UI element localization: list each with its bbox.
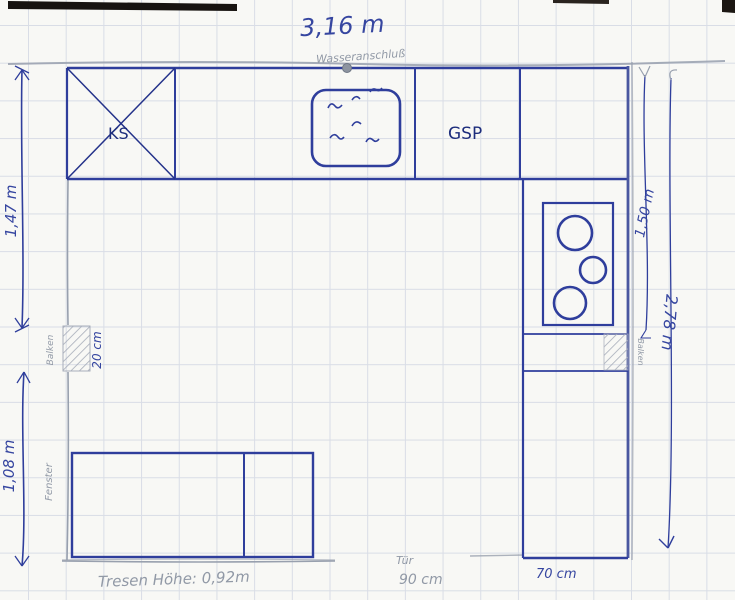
- dishwasher-label: GSP: [448, 124, 482, 144]
- arrowhead-down: [659, 536, 674, 548]
- arrowhead-curl-top: [670, 70, 677, 80]
- scan-strip-top-center: [553, 0, 609, 4]
- door-label: Tür: [396, 554, 415, 567]
- dim-right-inner-label: 1,50 m: [632, 187, 658, 239]
- fridge-label: KS: [108, 124, 129, 143]
- bottom-counter: [62, 453, 335, 560]
- burner-circle-3: [554, 287, 586, 319]
- stove: [543, 203, 613, 325]
- sink-outline: [312, 90, 400, 166]
- beam-right-hatch: [604, 334, 628, 370]
- sink-squiggle: [352, 122, 361, 126]
- bottom-counter-outline: [72, 453, 313, 557]
- burner-circle-1: [558, 216, 592, 250]
- bottom-wall-left-line: [62, 561, 335, 562]
- kitchen-floor-plan-scan: 3,16 m Wasseranschluß KS GSP 1,47 m 1,08…: [0, 0, 735, 600]
- counter-height-note: Tresen Höhe: 0,92m: [98, 568, 250, 591]
- scan-strip-top-left: [8, 1, 237, 11]
- top-counter-run: [67, 64, 628, 180]
- beam-right-label: Balken: [636, 338, 645, 365]
- beam-depth-label: 20 cm: [90, 331, 104, 368]
- beam-left-hatch: [63, 326, 90, 371]
- sink-squiggle: [352, 97, 360, 100]
- right-counter-column: [523, 66, 628, 558]
- floor-plan-drawing: 3,16 m Wasseranschluß KS GSP 1,47 m 1,08…: [0, 0, 735, 600]
- sink: [312, 88, 400, 166]
- left-wall-upper-line: [68, 180, 69, 325]
- left-beam: [63, 326, 90, 371]
- sink-squiggle: [370, 88, 382, 92]
- right-wall-pencil-line: [632, 62, 633, 560]
- dim-left-lower-label: 1,08 m: [0, 440, 18, 493]
- dim-line: [22, 372, 24, 566]
- burner-circle-2: [580, 257, 606, 283]
- tick-mark: [641, 330, 651, 338]
- dim-top-width-label: 3,16 m: [299, 10, 385, 42]
- scan-strip-top-right: [722, 0, 735, 13]
- sink-squiggle: [366, 138, 379, 142]
- sink-squiggle: [330, 135, 344, 139]
- bottom-counter-underline: [62, 559, 335, 560]
- beam-left-label: Balken: [46, 334, 56, 365]
- dim-line: [22, 70, 23, 328]
- dim-right-outer-label: 2,78 m: [658, 294, 682, 352]
- dim-left-upper-label: 1,47 m: [2, 185, 20, 238]
- arrowhead-up: [639, 66, 650, 77]
- left-wall-lower-line: [67, 372, 68, 560]
- window-label: Fenster: [44, 462, 55, 501]
- annotations: 3,16 m Wasseranschluß KS GSP 1,47 m 1,08…: [0, 10, 681, 591]
- sink-squiggle: [328, 104, 342, 108]
- column-width-label: 70 cm: [536, 567, 577, 582]
- water-connection-dot: [343, 64, 352, 73]
- bottom-wall-door-dash: [470, 555, 523, 556]
- door-width-label: 90 cm: [399, 572, 443, 588]
